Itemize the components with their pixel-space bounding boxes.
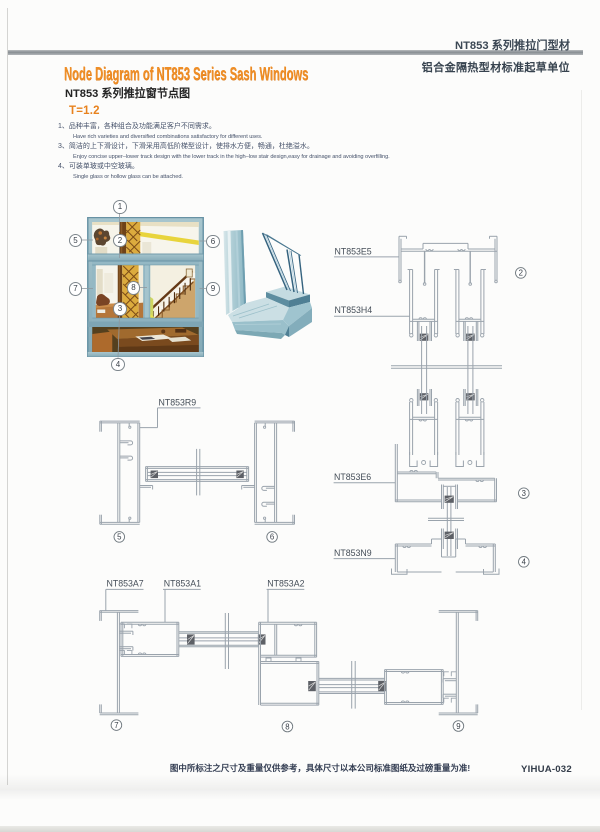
svg-text:NT853R9: NT853R9 (159, 397, 197, 407)
svg-text:NT853A7: NT853A7 (107, 578, 144, 588)
svg-text:7: 7 (114, 721, 118, 730)
svg-text:6: 6 (270, 533, 274, 542)
svg-text:NT853A2: NT853A2 (267, 578, 304, 588)
svg-text:8: 8 (285, 722, 289, 731)
svg-text:NT853E6: NT853E6 (334, 472, 371, 482)
svg-text:4: 4 (522, 558, 527, 567)
svg-text:NT853A1: NT853A1 (164, 578, 201, 588)
svg-text:NT853E5: NT853E5 (335, 246, 372, 256)
svg-text:NT853N9: NT853N9 (334, 548, 372, 558)
svg-text:NT853H4: NT853H4 (335, 305, 373, 315)
svg-text:5: 5 (117, 533, 122, 542)
svg-text:2: 2 (519, 269, 523, 278)
svg-text:9: 9 (456, 722, 460, 731)
svg-text:3: 3 (522, 489, 526, 498)
